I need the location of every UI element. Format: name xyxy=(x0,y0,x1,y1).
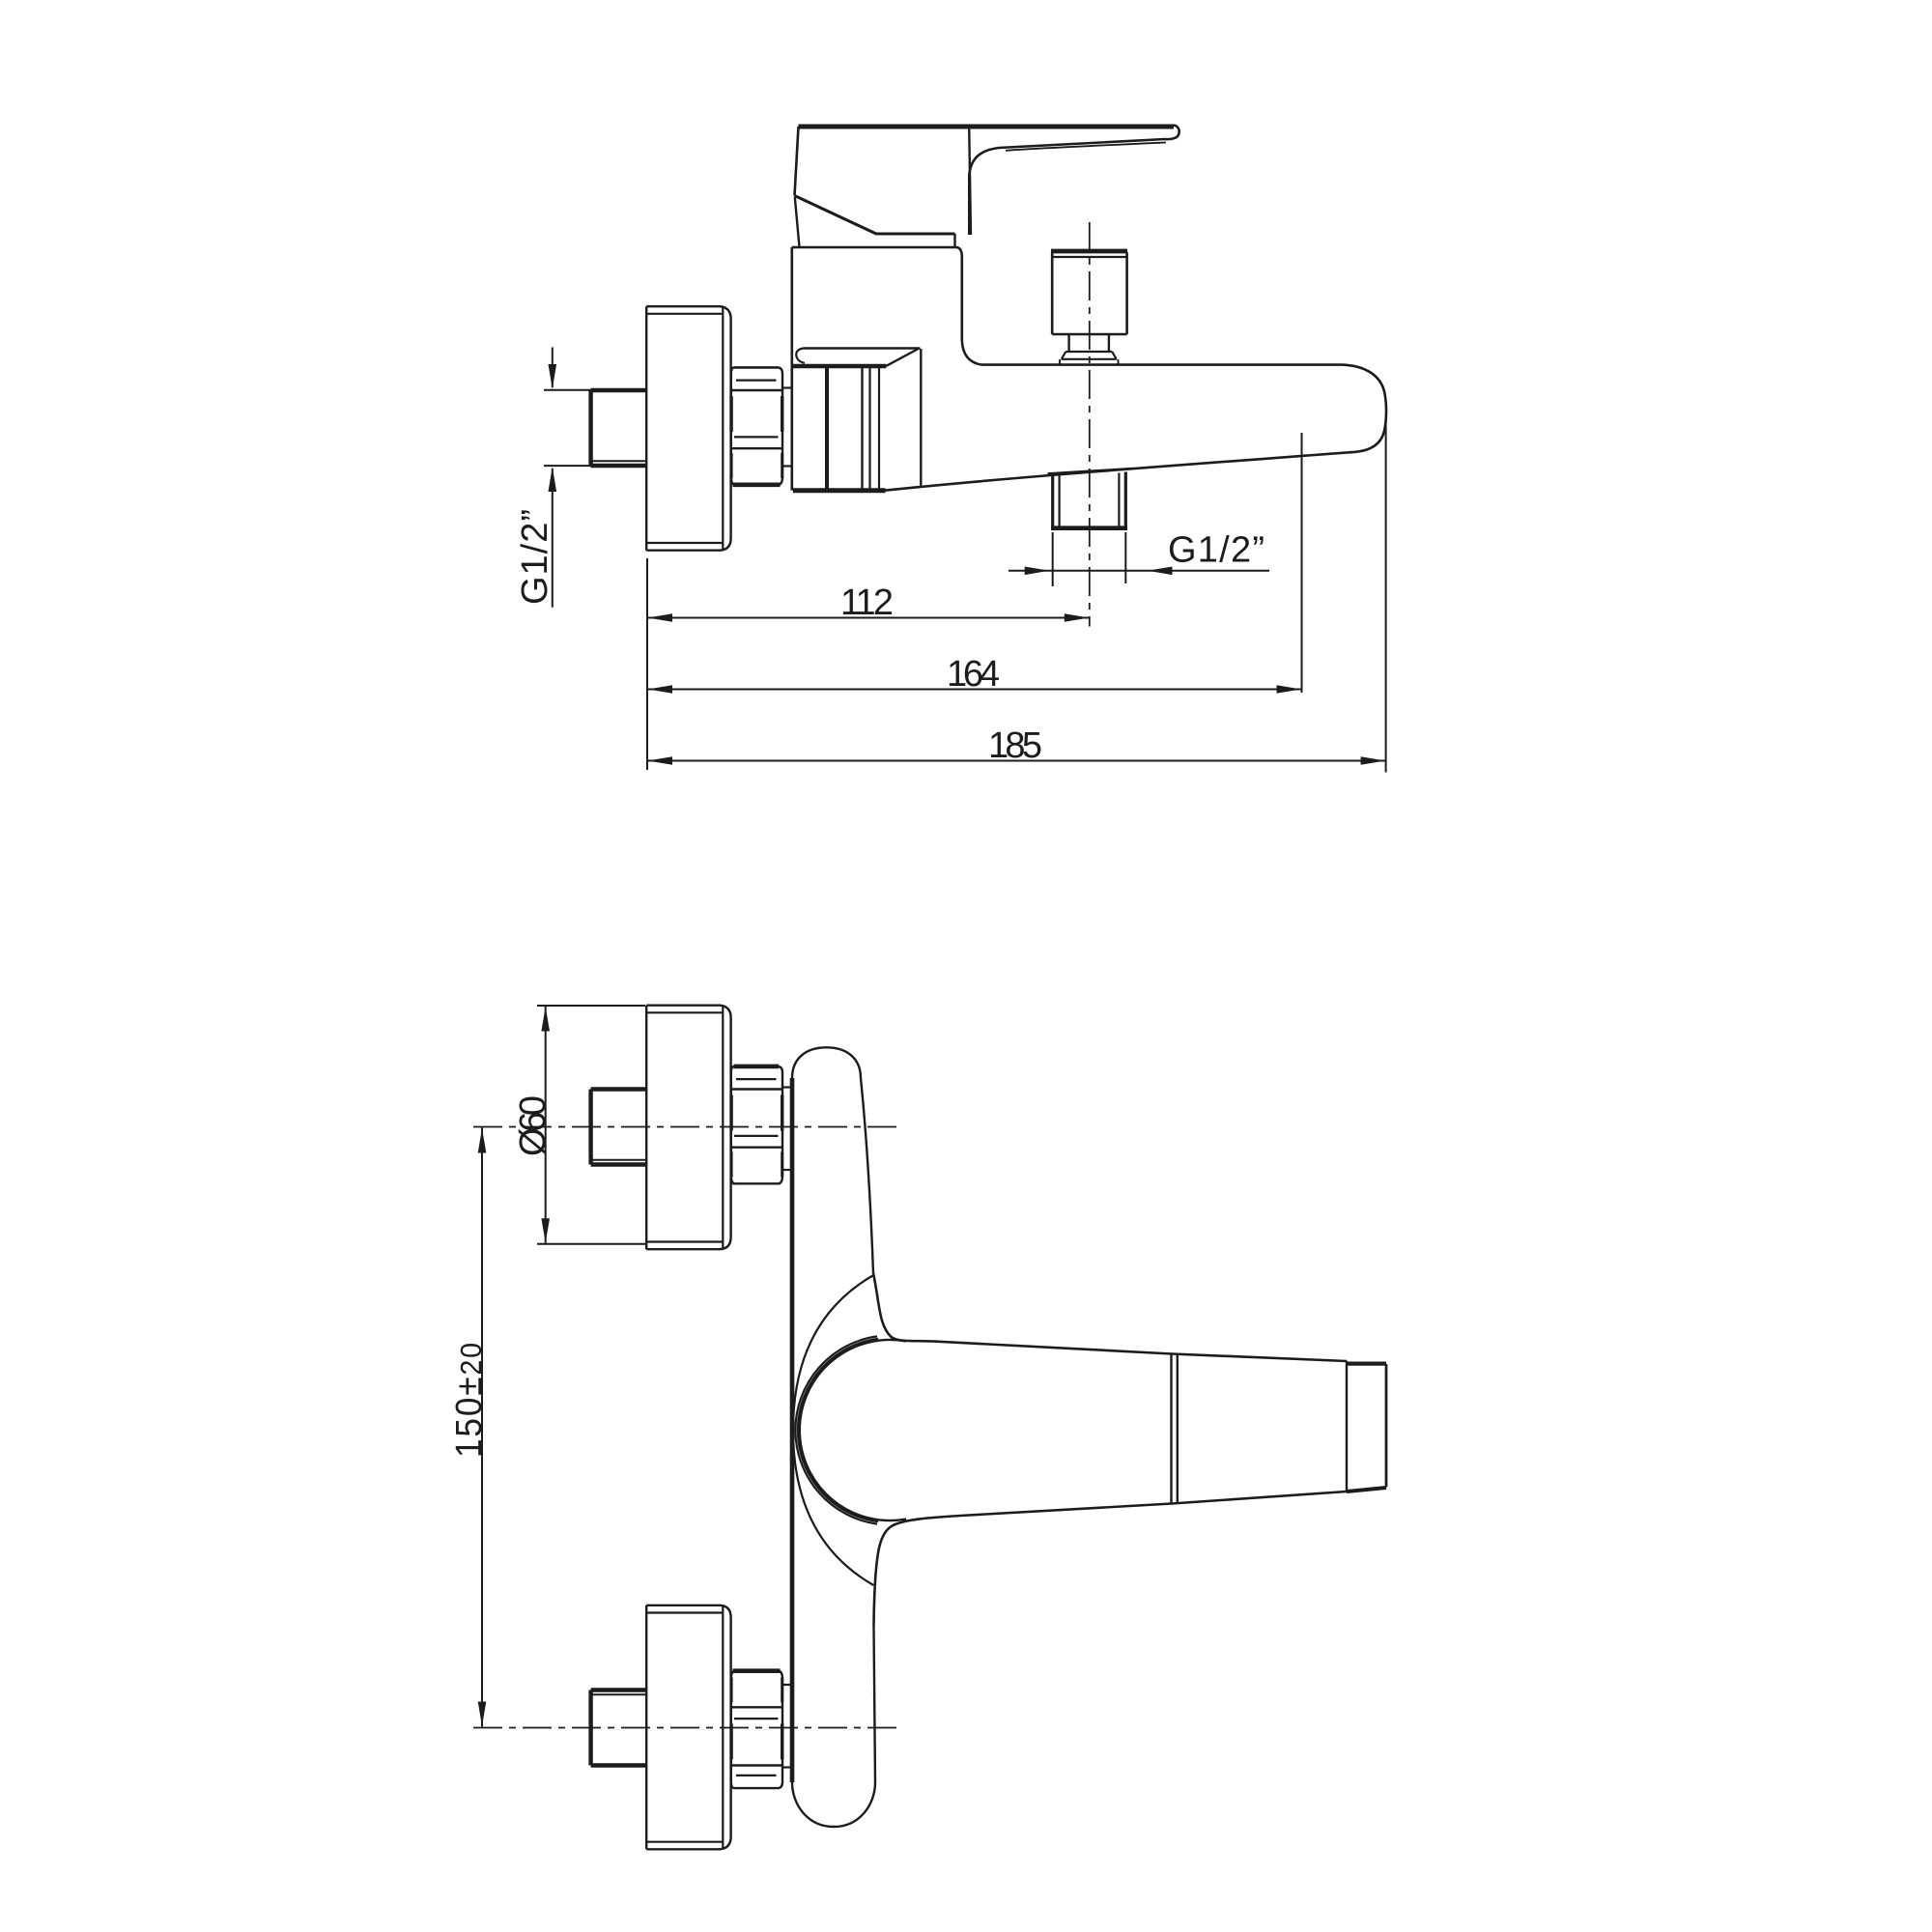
svg-text:164: 164 xyxy=(947,654,1002,695)
svg-text:112: 112 xyxy=(840,582,895,623)
svg-text:G1/2”: G1/2” xyxy=(515,507,555,605)
svg-text:185: 185 xyxy=(988,725,1044,766)
svg-text:150±20: 150±20 xyxy=(449,1341,490,1458)
svg-text:G1/2”: G1/2” xyxy=(1168,530,1266,571)
svg-text:Ø60: Ø60 xyxy=(513,1094,554,1156)
